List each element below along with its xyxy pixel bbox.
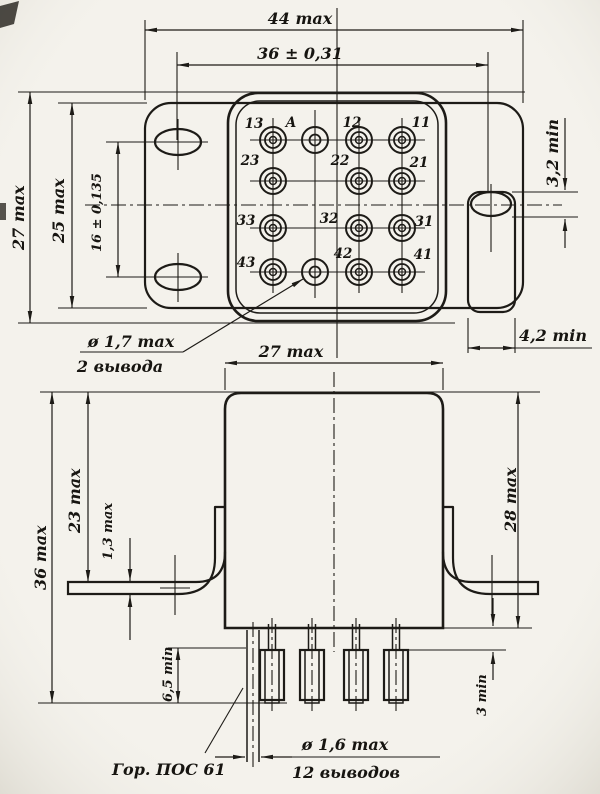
dim-pin-free-length: 6,5 min	[161, 647, 176, 702]
pin-label-21: 21	[409, 155, 429, 171]
scan-smudge-left-edge	[0, 203, 6, 220]
pin-label-22: 22	[330, 153, 350, 169]
contact-pin-callout-dia: ø 1,6 max	[301, 735, 389, 754]
pin-label-11: 11	[412, 115, 431, 131]
pin-label-32: 32	[320, 211, 339, 227]
pin-label-41: 41	[414, 247, 433, 263]
dim-hole-pitch: 16 ± 0,135	[90, 173, 105, 252]
pin-label-43: 43	[237, 255, 256, 271]
dim-body-width: 27 max	[258, 342, 324, 361]
relay-drawing: 44 max 36 ± 0,31 27 max 25 max 16 ± 0,13…	[0, 0, 600, 794]
pin-label-42: 42	[334, 246, 353, 262]
dim-overall-width: 44 max	[268, 9, 333, 28]
dim-hole-span: 36 ± 0,31	[257, 44, 343, 63]
pin-label-13: 13	[245, 116, 264, 132]
coil-pin-callout-dia: ø 1,7 max	[87, 332, 175, 351]
dim-sleeve-length: 3 min	[475, 674, 490, 716]
pin-label-A: A	[284, 115, 296, 131]
dim-flange-thickness: 1,3 max	[101, 503, 116, 560]
pin-label-33: 33	[237, 213, 256, 229]
pin-label-23: 23	[240, 153, 260, 169]
contact-pin-callout-count: 12 выводов	[292, 763, 400, 782]
dim-flange-height: 25 max	[49, 178, 68, 244]
dim-slot-height: 3,2 min	[543, 119, 562, 187]
dim-height-to-flange: 23 max	[65, 468, 84, 534]
coil-pin-callout-count: 2 вывода	[76, 357, 163, 376]
dim-overall-height-front: 36 max	[31, 525, 50, 590]
drawing-sheet: 44 max 36 ± 0,31 27 max 25 max 16 ± 0,13…	[0, 0, 600, 794]
pin-label-31: 31	[415, 214, 434, 230]
solder-callout-text: Гор. ПОС 61	[111, 760, 226, 779]
pin-label-12: 12	[343, 115, 362, 131]
dim-tab-width: 4,2 min	[519, 326, 587, 345]
dim-body-height: 28 max	[501, 467, 520, 533]
dim-overall-height: 27 max	[9, 185, 28, 251]
